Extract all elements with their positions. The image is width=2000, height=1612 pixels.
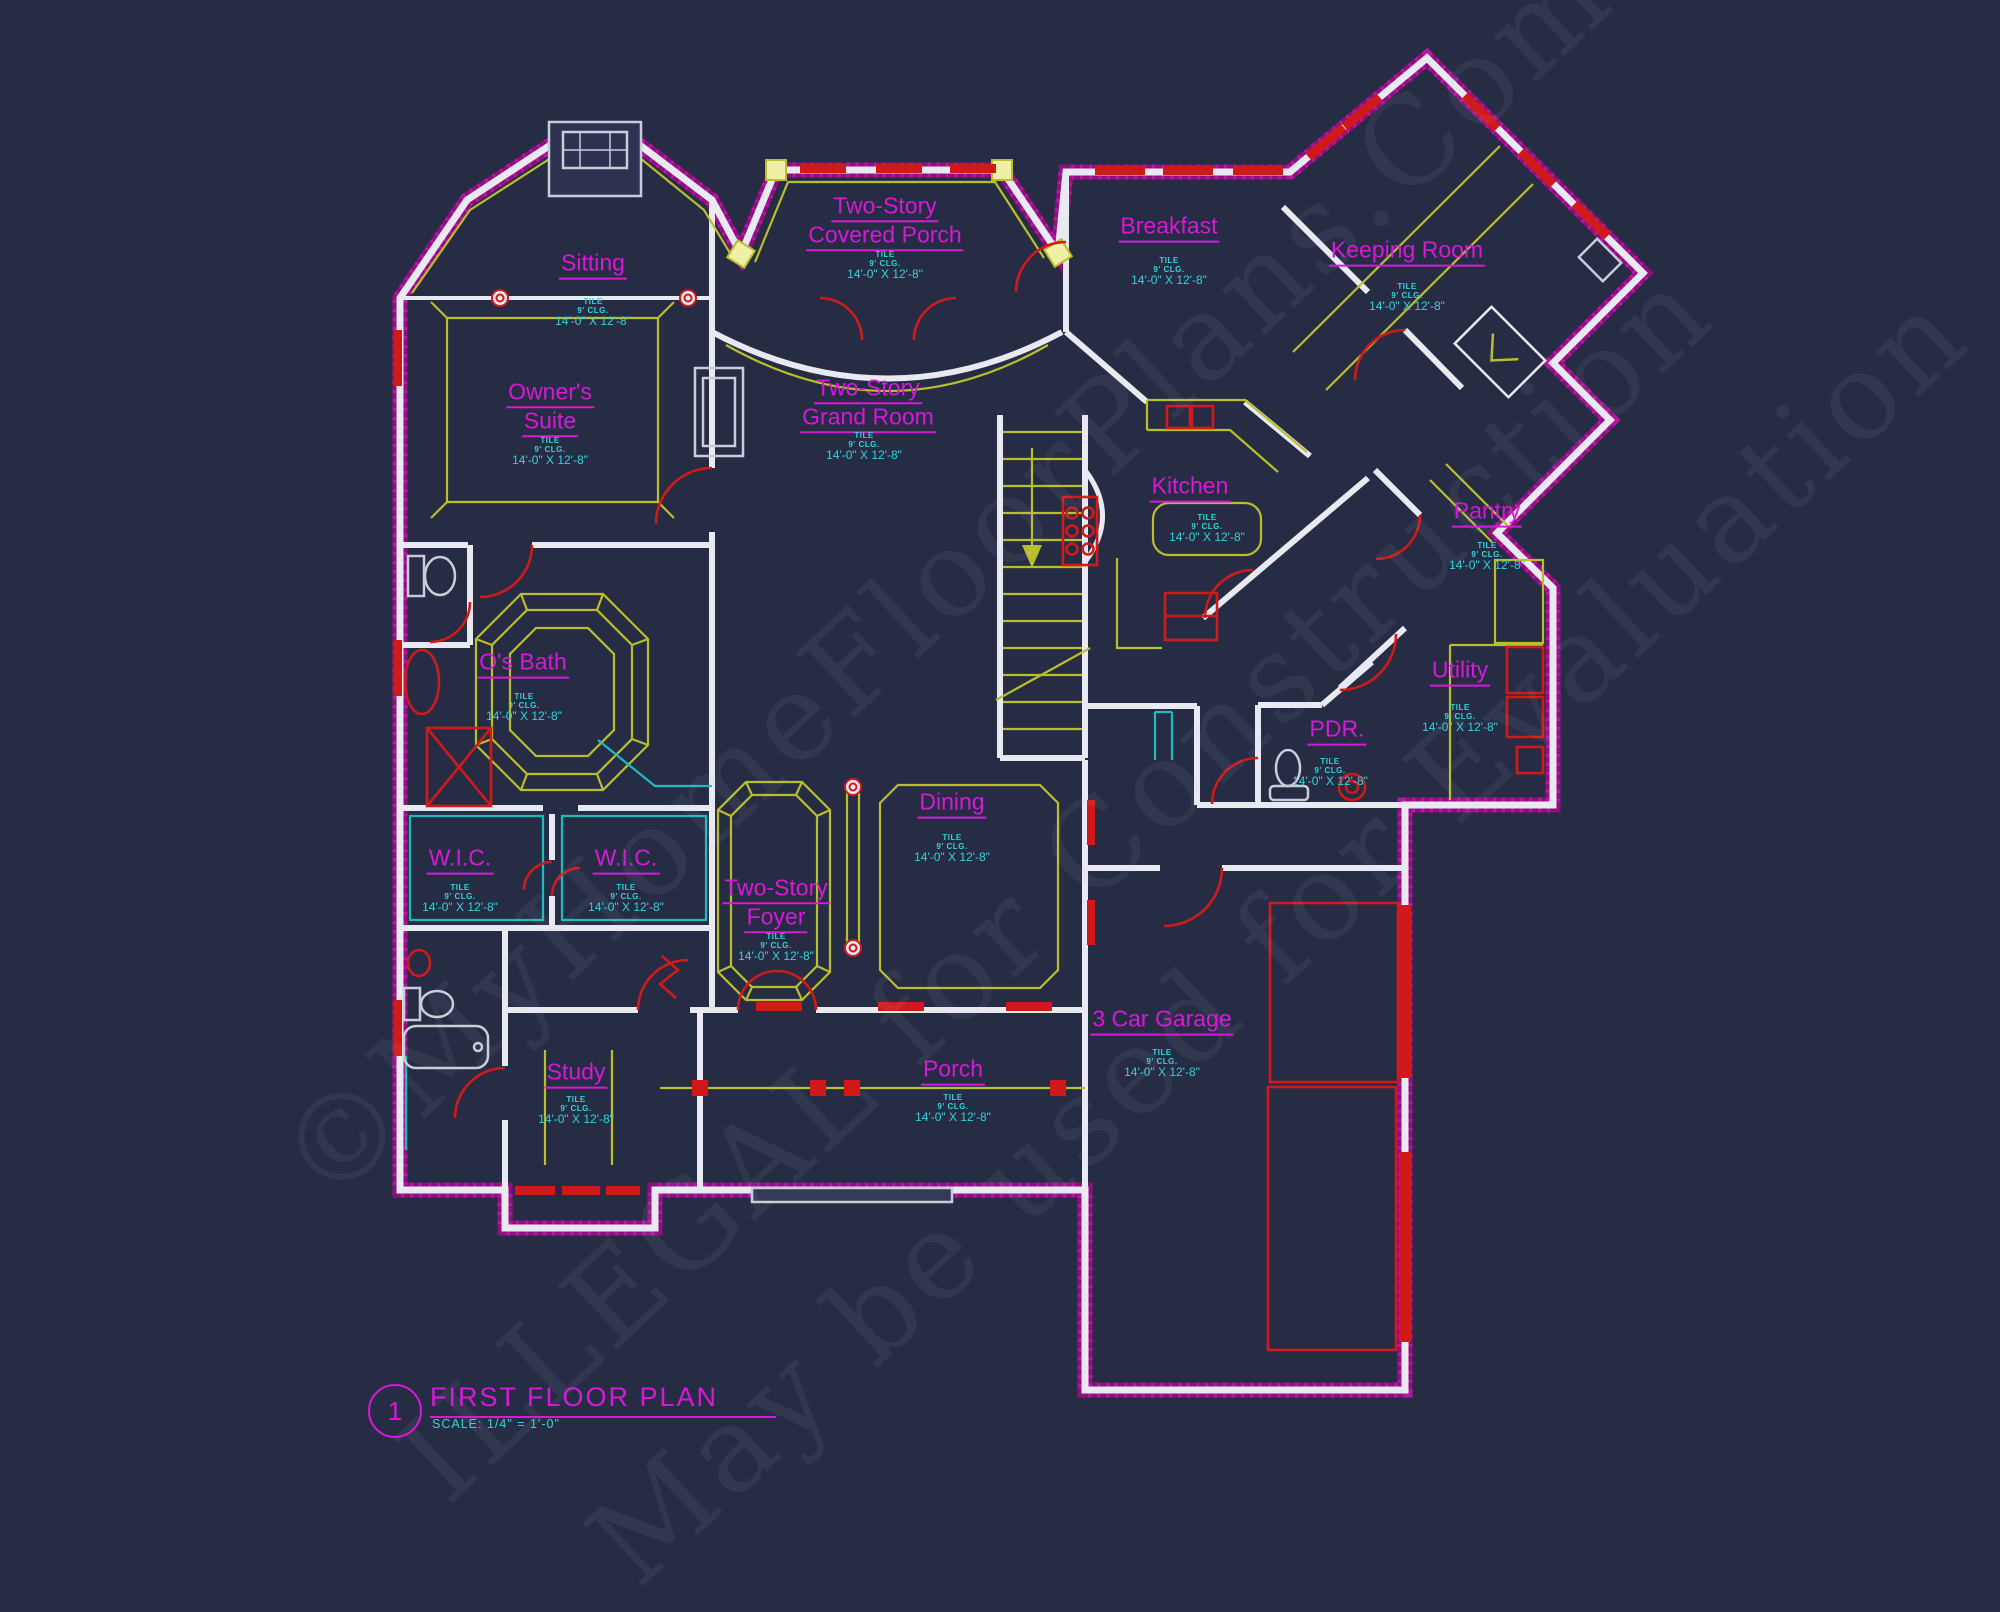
room-label-pantry: Pantry [1452,499,1522,528]
room-dims-covered-porch: TILE9' CLG.14'-0" X 12'-8" [847,250,923,282]
room-dims-kitchen: TILE9' CLG.14'-0" X 12'-8" [1169,513,1245,545]
room-label-owners-suite: Owner'sSuite [506,379,594,437]
floor-plan-drawing: ©MyHomeFloorPlans.Com ILLEGAL for Constr… [0,0,2000,1500]
room-dims-keeping-room: TILE9' CLG.14'-0" X 12'-8" [1369,282,1445,314]
floor-plan-svg [0,0,2000,1500]
room-label-breakfast: Breakfast [1118,214,1219,243]
room-label-dining: Dining [917,790,986,819]
room-dims-owners-suite: TILE9' CLG.14'-0" X 12'-8" [512,436,588,468]
room-label-grand-room: Two-StoryGrand Room [800,375,936,433]
room-label-foyer: Two-StoryFoyer [722,875,830,933]
page-title: FIRST FLOOR PLAN [430,1382,776,1418]
detail-number-circle: 1 [368,1384,422,1438]
room-label-sitting: Sitting [559,251,627,280]
room-label-porch: Porch [921,1057,985,1086]
floor-plan-page: { "colors": { "background": "#272c45", "… [0,0,2000,1500]
room-dims-foyer: TILE9' CLG.14'-0" X 12'-8" [738,932,814,964]
room-label-utility: Utility [1430,658,1490,687]
stair-arrow-head [1022,545,1042,568]
room-label-keeping-room: Keeping Room [1329,238,1485,267]
room-dims-pdr: TILE9' CLG.14'-0" X 12'-8" [1292,757,1368,789]
room-dims-grand-room: TILE9' CLG.14'-0" X 12'-8" [826,431,902,463]
room-dims-breakfast: TILE9' CLG.14'-0" X 12'-8" [1131,256,1207,288]
room-dims-wic-2: TILE9' CLG.14'-0" X 12'-8" [588,883,664,915]
room-label-wic-2: W.I.C. [593,846,660,875]
room-dims-sitting: TILE9' CLG.14'-0" X 12'-8" [555,297,631,329]
room-label-study: Study [545,1060,608,1089]
room-dims-porch: TILE9' CLG.14'-0" X 12'-8" [915,1093,991,1125]
detail-number: 1 [388,1396,402,1427]
plan-scale: SCALE: 1/4" = 1'-0" [432,1417,560,1431]
room-label-covered-porch: Two-StoryCovered Porch [806,193,963,251]
room-dims-dining: TILE9' CLG.14'-0" X 12'-8" [914,833,990,865]
room-label-garage: 3 Car Garage [1090,1007,1233,1036]
room-label-kitchen: Kitchen [1150,474,1231,503]
room-dims-os-bath: TILE9' CLG.14'-0" X 12'-8" [486,692,562,724]
room-dims-wic-1: TILE9' CLG.14'-0" X 12'-8" [422,883,498,915]
room-label-pdr: PDR. [1308,717,1367,746]
room-label-os-bath: O's Bath [477,650,569,679]
room-dims-study: TILE9' CLG.14'-0" X 12'-8" [538,1095,614,1127]
room-dims-pantry: TILE9' CLG.14'-0" X 12'-8" [1449,541,1525,573]
room-label-wic-1: W.I.C. [427,846,494,875]
room-dims-garage: TILE9' CLG.14'-0" X 12'-8" [1124,1048,1200,1080]
room-dims-utility: TILE9' CLG.14'-0" X 12'-8" [1422,703,1498,735]
